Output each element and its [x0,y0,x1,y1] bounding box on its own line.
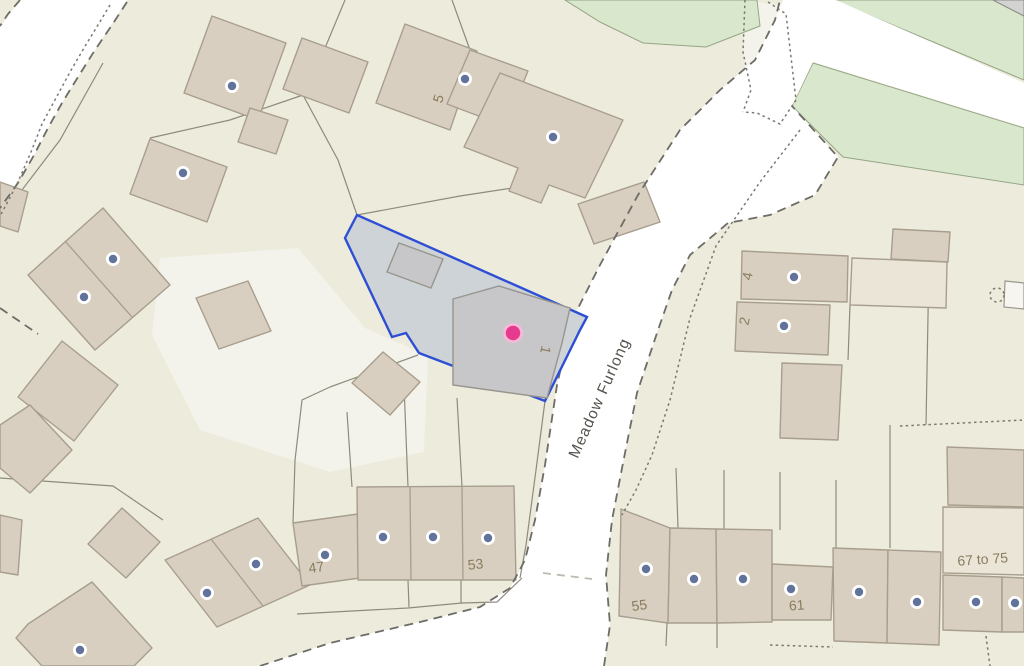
property-marker[interactable] [852,585,866,599]
property-marker[interactable] [546,130,560,144]
property-marker[interactable] [639,562,653,576]
property-marker[interactable] [249,557,263,571]
property-marker[interactable] [687,572,701,586]
house-number-label: 53 [467,555,484,573]
property-marker[interactable] [458,72,472,86]
property-marker[interactable] [910,595,924,609]
property-marker[interactable] [106,252,120,266]
property-marker[interactable] [736,572,750,586]
building [0,515,22,575]
property-marker[interactable] [318,548,332,562]
property-marker[interactable] [481,531,495,545]
property-marker[interactable] [784,582,798,596]
property-marker[interactable] [1008,596,1022,610]
building [780,363,842,440]
property-marker[interactable] [969,595,983,609]
house-number-label: 55 [630,596,648,614]
property-marker[interactable] [777,319,791,333]
building-47 [293,514,367,586]
map-canvas[interactable]: 51424753556167 to 75 Meadow Furlong [0,0,1024,666]
property-marker[interactable] [787,270,801,284]
building [891,229,950,262]
building [1004,281,1024,309]
selected-property-marker[interactable] [503,323,523,343]
house-number-label: 61 [788,596,805,613]
property-marker[interactable] [376,530,390,544]
property-marker[interactable] [73,643,87,657]
property-marker[interactable] [77,290,91,304]
property-marker[interactable] [176,166,190,180]
property-marker[interactable] [200,586,214,600]
building [947,447,1024,507]
property-marker[interactable] [426,530,440,544]
map-viewport[interactable]: 51424753556167 to 75 Meadow Furlong [0,0,1024,666]
selected-marker-layer [503,323,523,343]
building [850,258,947,308]
property-marker[interactable] [225,79,239,93]
